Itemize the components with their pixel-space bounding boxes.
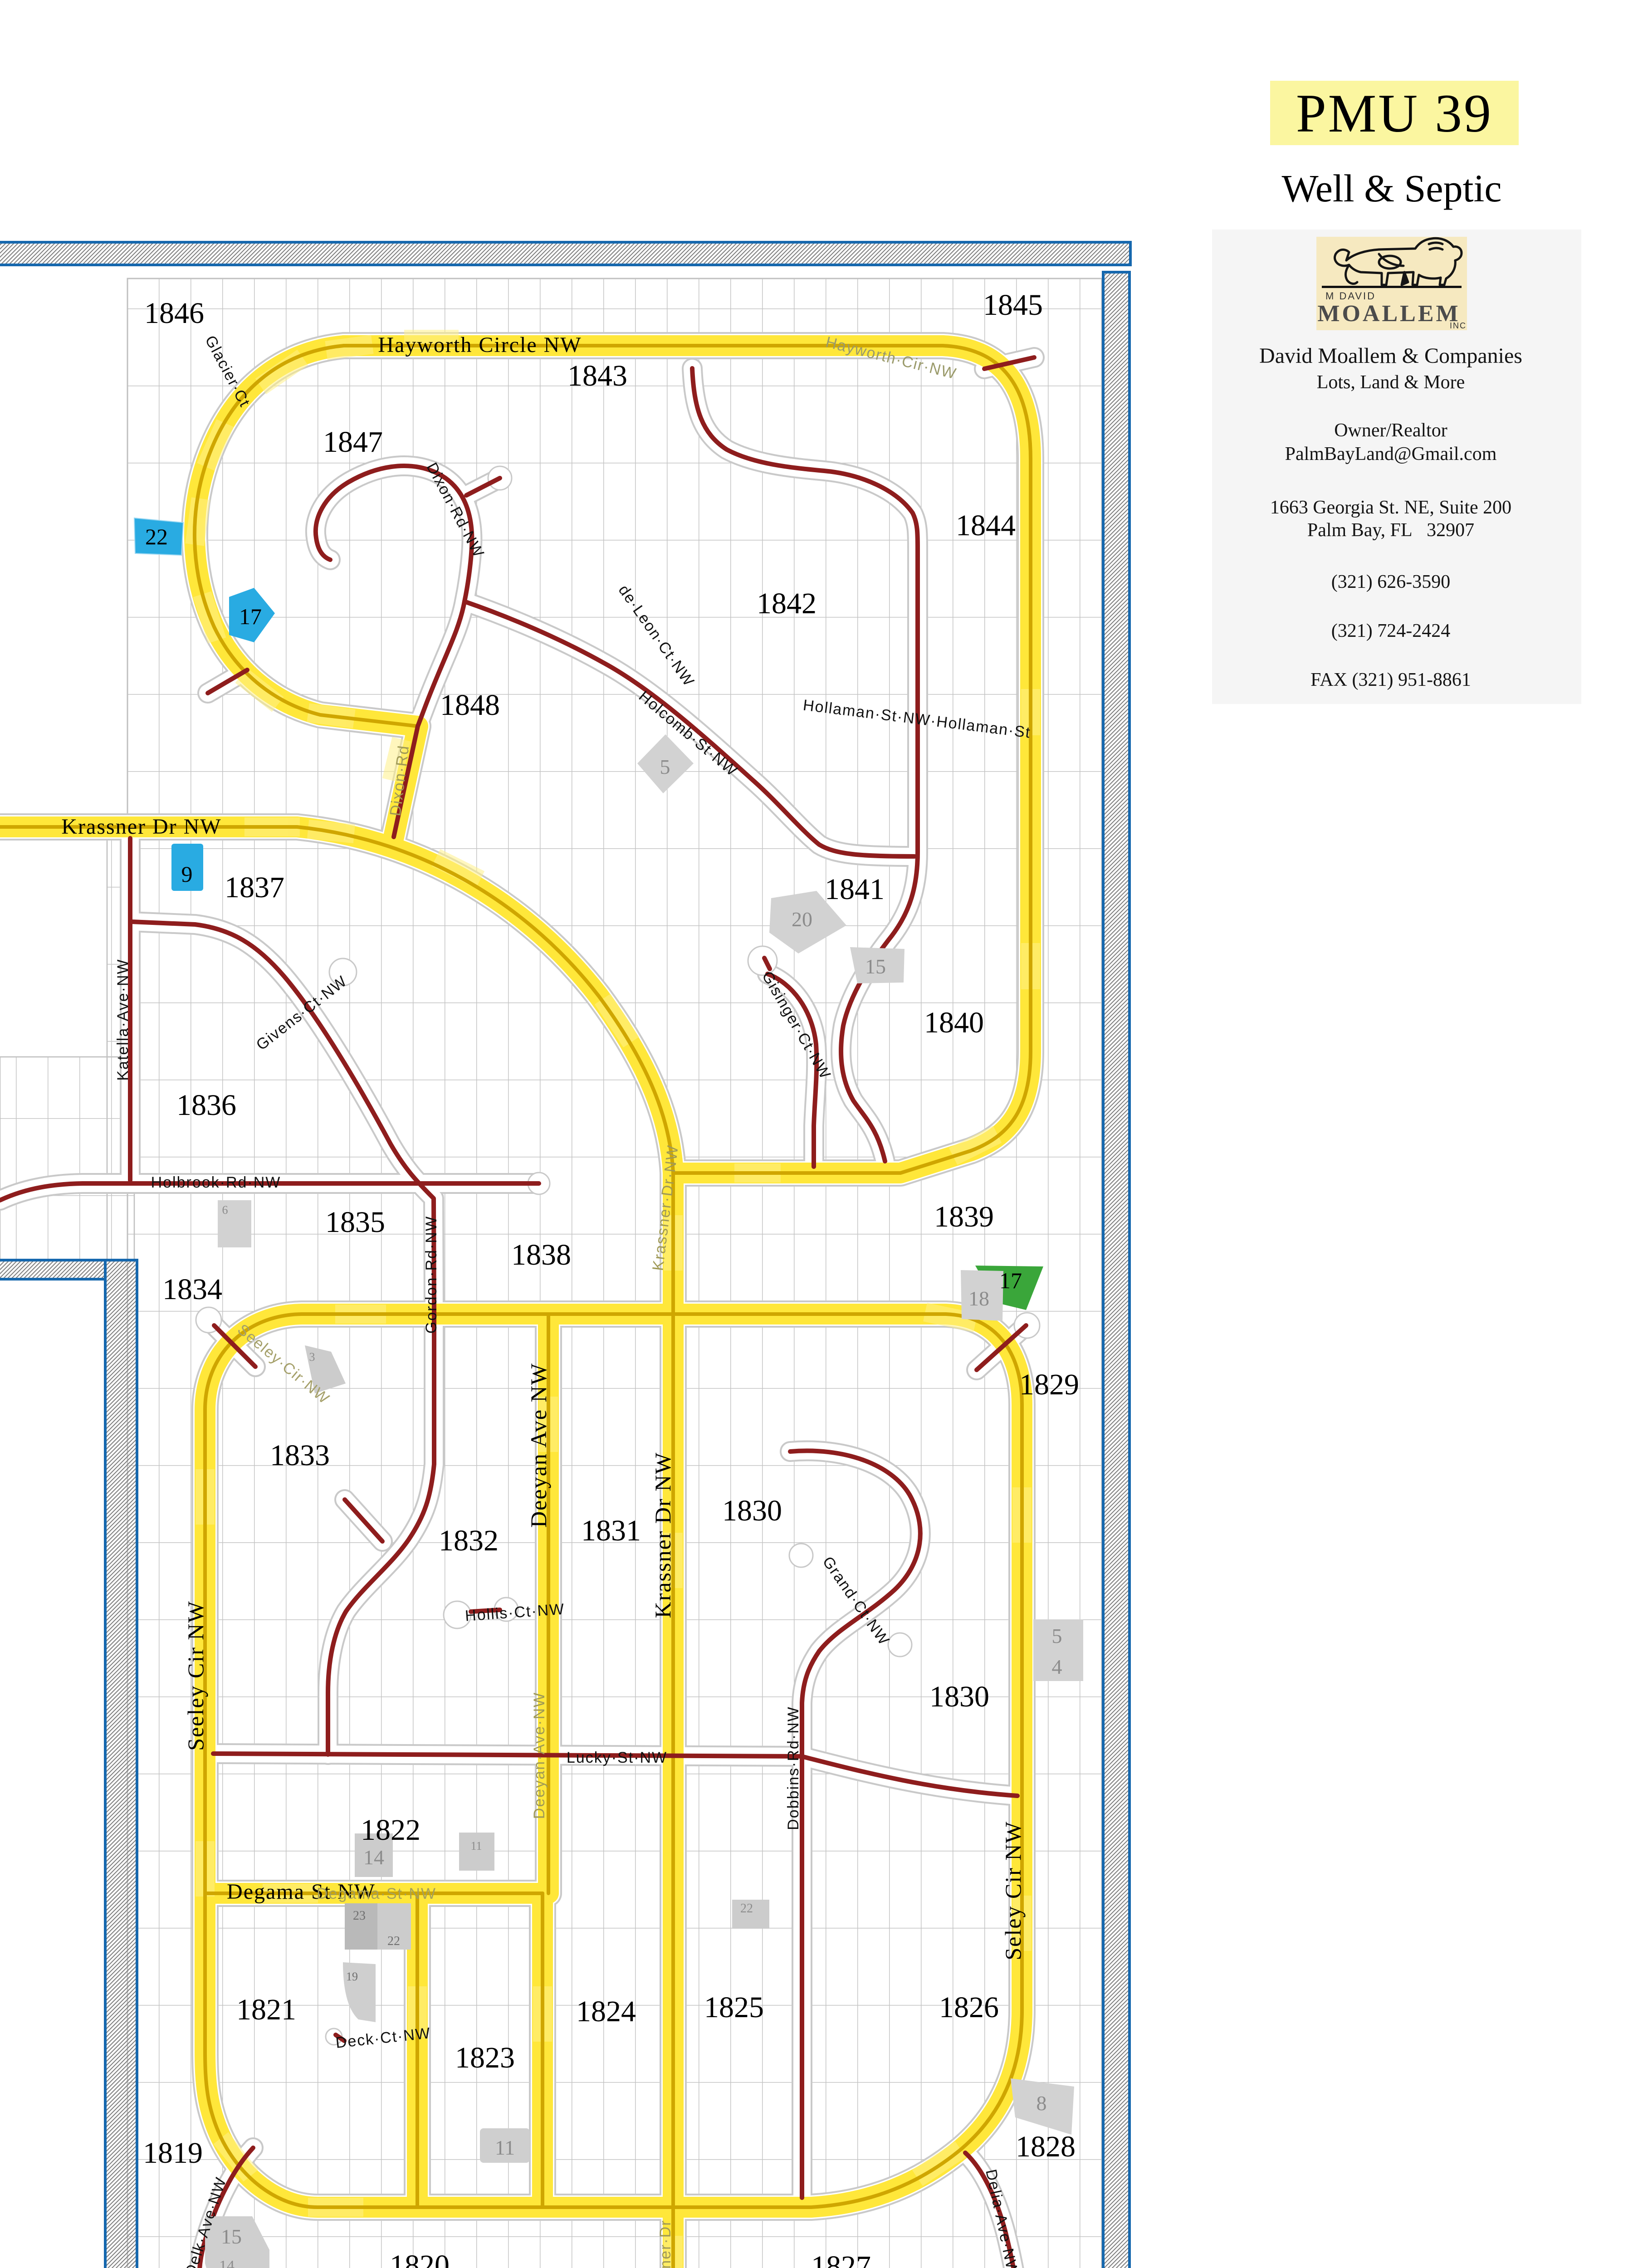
svg-text:Dobbins·Rd·NW: Dobbins·Rd·NW [785, 1706, 802, 1830]
svg-text:1830: 1830 [929, 1680, 989, 1713]
svg-text:14: 14 [363, 1846, 384, 1869]
svg-text:1847: 1847 [323, 425, 383, 459]
svg-text:Krassner Dr NW: Krassner Dr NW [650, 1452, 675, 1618]
svg-text:18: 18 [968, 1287, 989, 1310]
svg-text:1829: 1829 [1019, 1368, 1079, 1401]
svg-text:1833: 1833 [270, 1439, 330, 1472]
svg-text:9: 9 [181, 861, 193, 887]
svg-text:15: 15 [221, 2225, 242, 2248]
svg-text:M DAVID: M DAVID [1325, 290, 1376, 302]
svg-text:1838: 1838 [511, 1238, 571, 1271]
svg-text:22: 22 [387, 1934, 400, 1948]
svg-text:1819: 1819 [143, 2136, 203, 2170]
svg-text:1834: 1834 [162, 1273, 222, 1306]
svg-text:(321) 724-2424: (321) 724-2424 [1331, 621, 1450, 641]
svg-text:1848: 1848 [440, 689, 500, 722]
svg-text:1843: 1843 [567, 359, 627, 392]
svg-text:23: 23 [353, 1909, 366, 1923]
svg-text:1837: 1837 [225, 871, 284, 904]
svg-text:Deeyan Ave NW: Deeyan Ave NW [526, 1363, 551, 1528]
svg-text:1828: 1828 [1016, 2130, 1076, 2163]
svg-text:22: 22 [145, 524, 168, 549]
svg-text:1845: 1845 [983, 288, 1043, 322]
svg-text:20: 20 [792, 908, 812, 931]
svg-text:Deeyan·Ave·NW: Deeyan·Ave·NW [531, 1692, 548, 1819]
svg-text:17: 17 [239, 604, 262, 629]
svg-text:8: 8 [1037, 2092, 1047, 2115]
svg-text:Krassner Dr NW: Krassner Dr NW [61, 815, 221, 839]
svg-text:Lots, Land & More: Lots, Land & More [1317, 372, 1465, 393]
svg-text:Lucky·St·NW: Lucky·St·NW [567, 1749, 667, 1766]
svg-text:1846: 1846 [144, 297, 204, 330]
svg-text:Hayworth Circle NW: Hayworth Circle NW [378, 333, 582, 357]
svg-text:1821: 1821 [236, 1993, 296, 2026]
svg-text:6: 6 [222, 1203, 228, 1217]
svg-text:1822: 1822 [361, 1813, 420, 1847]
svg-text:1841: 1841 [825, 873, 885, 906]
svg-text:MOALLEM: MOALLEM [1317, 301, 1460, 327]
svg-text:14: 14 [219, 2258, 235, 2268]
svg-text:PMU 39: PMU 39 [1296, 83, 1493, 143]
svg-text:(321) 626-3590: (321) 626-3590 [1331, 572, 1450, 592]
svg-text:Seeley Cir NW: Seeley Cir NW [183, 1600, 208, 1750]
svg-text:1824: 1824 [576, 1995, 636, 2028]
svg-text:1830: 1830 [722, 1494, 782, 1527]
svg-text:1826: 1826 [939, 1991, 999, 2024]
svg-text:FAX (321) 951-8861: FAX (321) 951-8861 [1310, 670, 1471, 690]
svg-text:1832: 1832 [439, 1524, 499, 1557]
svg-text:Well & Septic: Well & Septic [1281, 166, 1501, 210]
svg-text:Krassner·Dr: Krassner·Dr [657, 2219, 674, 2268]
svg-text:Gordon·Rd·NW: Gordon·Rd·NW [423, 1216, 440, 1334]
svg-text:19: 19 [346, 1970, 358, 1983]
svg-text:1839: 1839 [934, 1200, 994, 1233]
svg-text:1836: 1836 [176, 1089, 236, 1122]
svg-text:1825: 1825 [704, 1991, 764, 2024]
svg-text:Palm Bay, FL 32907: Palm Bay, FL 32907 [1307, 520, 1474, 541]
svg-text:Seley Cir NW: Seley Cir NW [1000, 1821, 1026, 1960]
svg-text:17: 17 [999, 1268, 1022, 1293]
svg-text:1663 Georgia St. NE, Suite 200: 1663 Georgia St. NE, Suite 200 [1270, 497, 1511, 518]
svg-text:1823: 1823 [455, 2041, 515, 2074]
svg-text:Katella·Ave·NW: Katella·Ave·NW [114, 958, 132, 1080]
svg-text:22: 22 [740, 1901, 753, 1916]
svg-text:11: 11 [495, 2136, 515, 2159]
svg-text:15: 15 [865, 955, 886, 978]
svg-text:Owner/Realtor: Owner/Realtor [1334, 420, 1447, 441]
svg-text:1820: 1820 [390, 2249, 450, 2268]
svg-text:1842: 1842 [757, 587, 816, 620]
svg-text:Holbrook·Rd·NW: Holbrook·Rd·NW [151, 1174, 281, 1191]
svg-text:5: 5 [660, 755, 670, 778]
svg-text:INC: INC [1450, 321, 1467, 330]
svg-text:David Moallem & Companies: David Moallem & Companies [1259, 344, 1522, 368]
svg-text:1840: 1840 [924, 1006, 984, 1039]
svg-text:1835: 1835 [325, 1206, 385, 1239]
svg-text:11: 11 [470, 1839, 482, 1853]
svg-text:3: 3 [309, 1350, 315, 1364]
svg-text:PalmBayLand@Gmail.com: PalmBayLand@Gmail.com [1285, 444, 1497, 464]
svg-text:5: 5 [1052, 1624, 1062, 1647]
svg-text:1844: 1844 [956, 509, 1016, 542]
svg-text:4: 4 [1052, 1655, 1062, 1678]
svg-text:1831: 1831 [581, 1514, 641, 1547]
svg-text:Degama·St·NW: Degama·St·NW [317, 1885, 436, 1902]
svg-text:1827: 1827 [811, 2250, 871, 2268]
